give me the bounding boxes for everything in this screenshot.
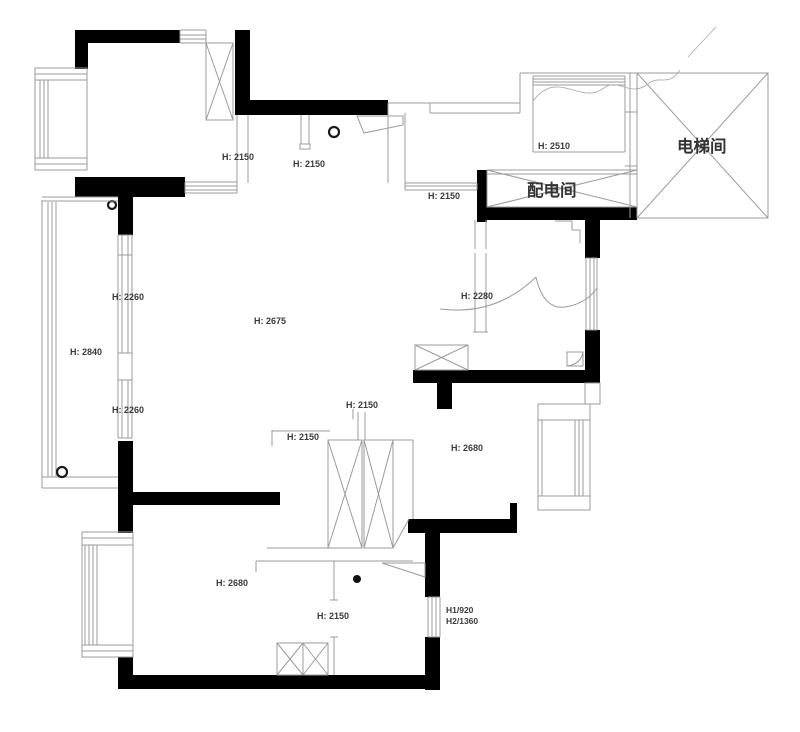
fixture-circle-icon [329,127,339,137]
window-east-upper [586,258,597,330]
window-bottom [185,182,237,193]
hatch-box-right [364,440,393,548]
door-leaf [357,116,403,133]
fixture-circle-icon [108,201,116,209]
height-label: H1/920 [446,605,474,615]
distribution-room [487,170,637,243]
room-partition-lines [393,440,413,519]
fixture-circle-icon [57,467,67,477]
duct-lines [353,409,365,440]
height-label: H2/1360 [446,616,478,626]
window-top [180,30,206,43]
flue-hatch-box [415,345,468,370]
sliding-door-leaf [382,563,425,577]
bay-window-east [538,404,590,510]
wall-face-lines [237,115,248,183]
wall-sill-box [585,383,600,404]
floor-plan-canvas: H: 2150 H: 2150 H: 2510 电梯间 配电间 H: 2150 … [0,0,800,732]
shaft-hatch-box [206,43,233,120]
balcony-glazing [42,197,118,488]
door-frame [300,115,310,149]
lobby-south-window [405,183,477,190]
height-label: H: 2680 [451,443,483,453]
height-label: H: 2260 [112,292,144,302]
room-label-distribution: 配电间 [527,180,577,200]
door-leaf-diagonal [393,519,409,548]
height-label: H: 2260 [112,405,144,415]
height-label: H: 2280 [461,291,493,301]
height-label: H: 2675 [254,316,286,326]
window-south-east [428,597,440,637]
kitchen-top-window [533,76,625,85]
bay-window-southwest [82,532,133,657]
height-label: H: 2840 [70,347,102,357]
middle-right-room [393,258,600,519]
structural-walls [75,30,637,690]
height-label: H: 2150 [287,432,319,442]
bay-window-west [35,68,87,170]
shaft-column [267,440,409,548]
door-swing-arc [536,277,597,307]
height-label: H: 2150 [346,400,378,410]
low-wall-lines [473,220,488,332]
floor-plan-page: H: 2150 H: 2150 H: 2510 电梯间 配电间 H: 2150 … [0,0,800,732]
lobby-east-wall [625,73,637,218]
entry-step-lines [555,221,580,243]
entry-hall [272,220,597,446]
double-hatch-box [277,643,328,675]
lobby-outline [388,73,638,183]
corner-fixture [567,352,583,366]
bottom-left-room [82,532,440,675]
height-label: H: 2680 [216,578,248,588]
drain-symbol-icon [353,575,361,583]
room-label-elevator: 电梯间 [677,136,727,156]
height-label: H: 2150 [293,159,325,169]
height-label: H: 2150 [428,191,460,201]
height-label: H: 2150 [222,152,254,162]
height-label: H: 2510 [538,141,570,151]
entry-lobby [388,73,638,218]
hatch-box-left [328,440,362,548]
height-label: H: 2150 [317,611,349,621]
